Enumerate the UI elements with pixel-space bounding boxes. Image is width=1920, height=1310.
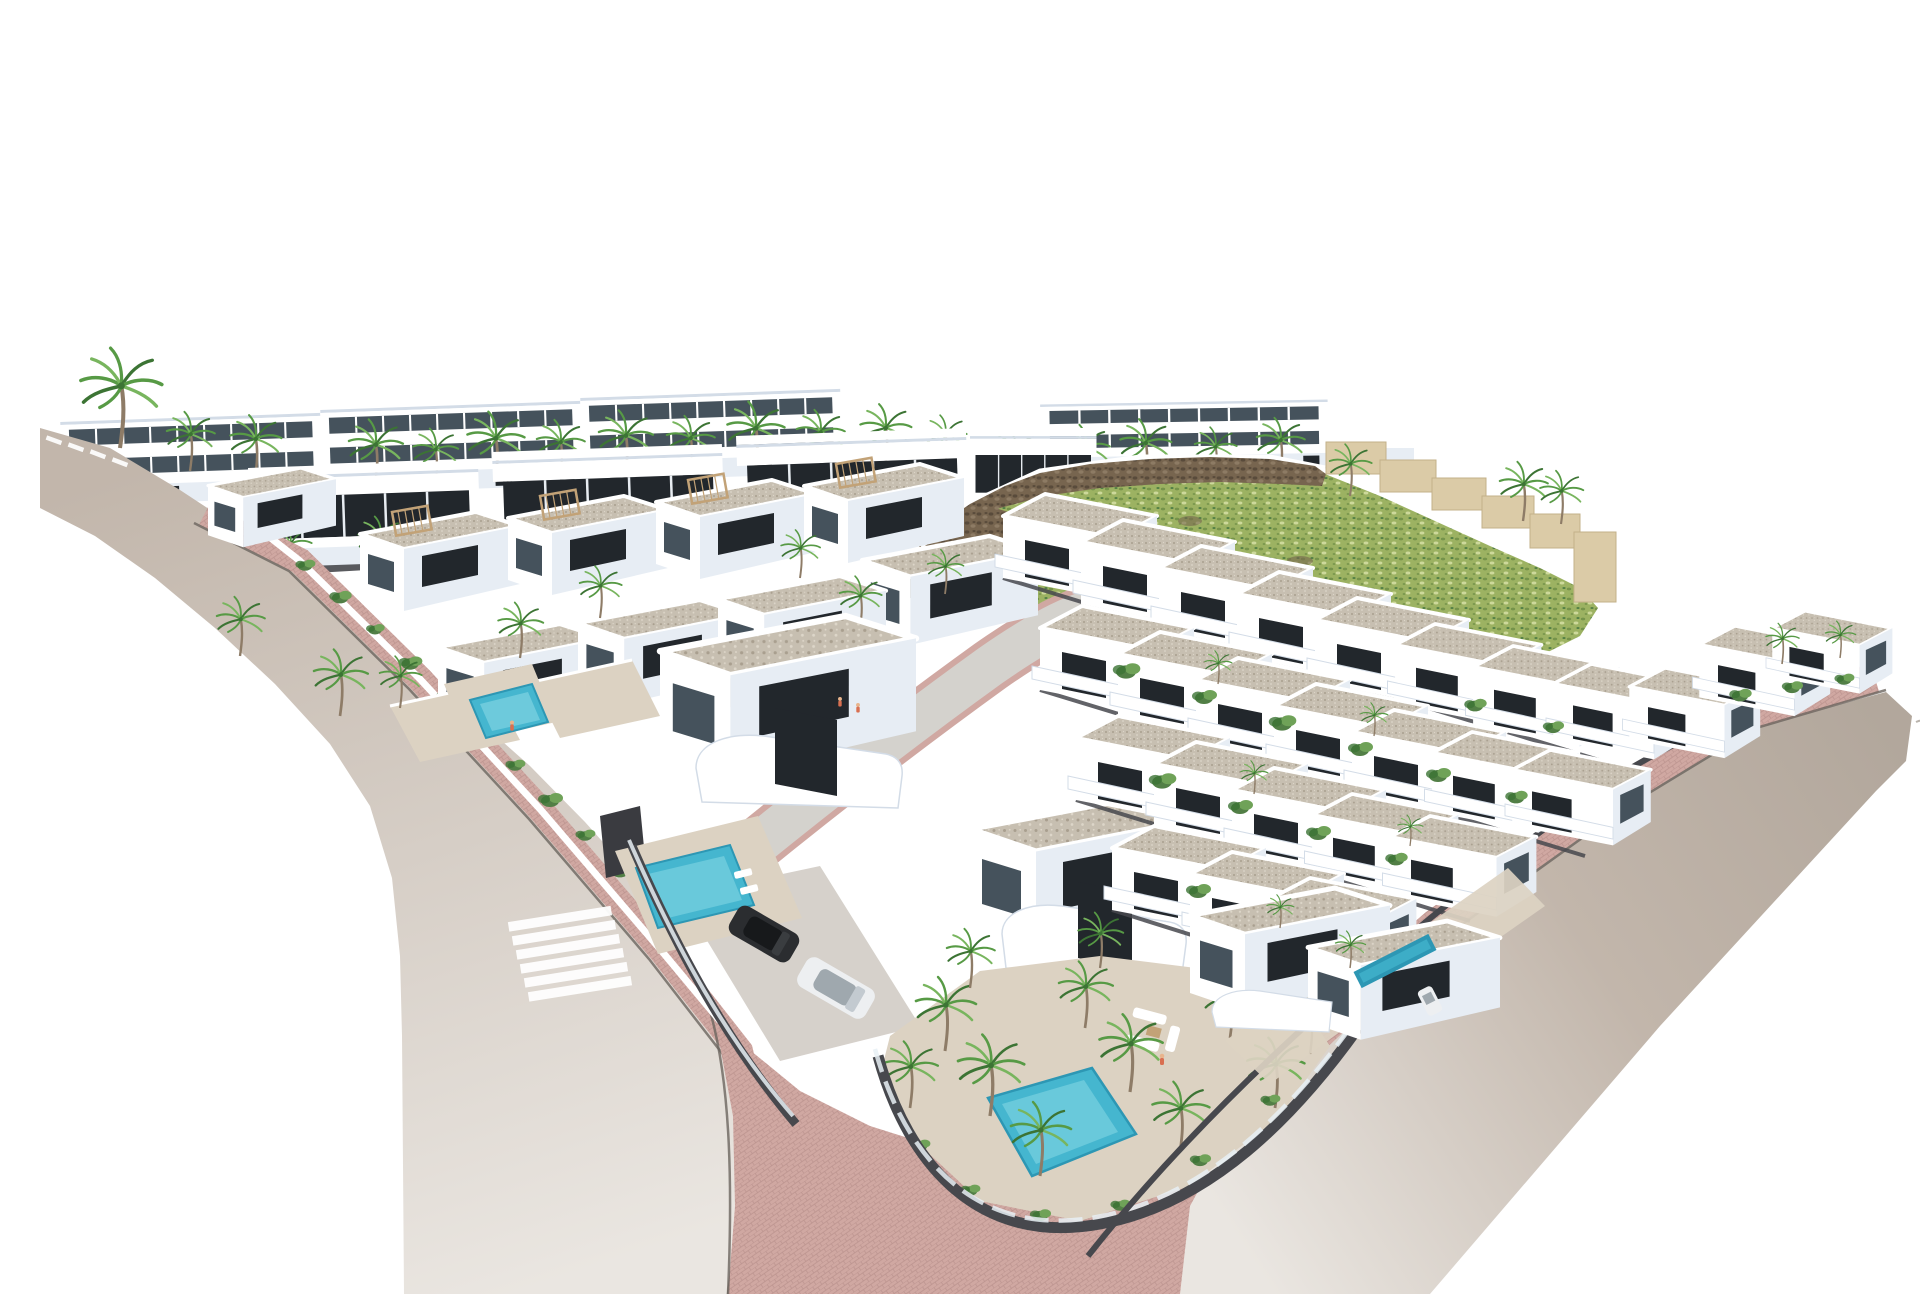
development-render <box>40 16 1920 1294</box>
window <box>775 708 837 796</box>
render-canvas <box>40 16 1920 1294</box>
rock-patch <box>1178 516 1202 526</box>
person <box>1160 1054 1165 1065</box>
person <box>510 721 514 731</box>
